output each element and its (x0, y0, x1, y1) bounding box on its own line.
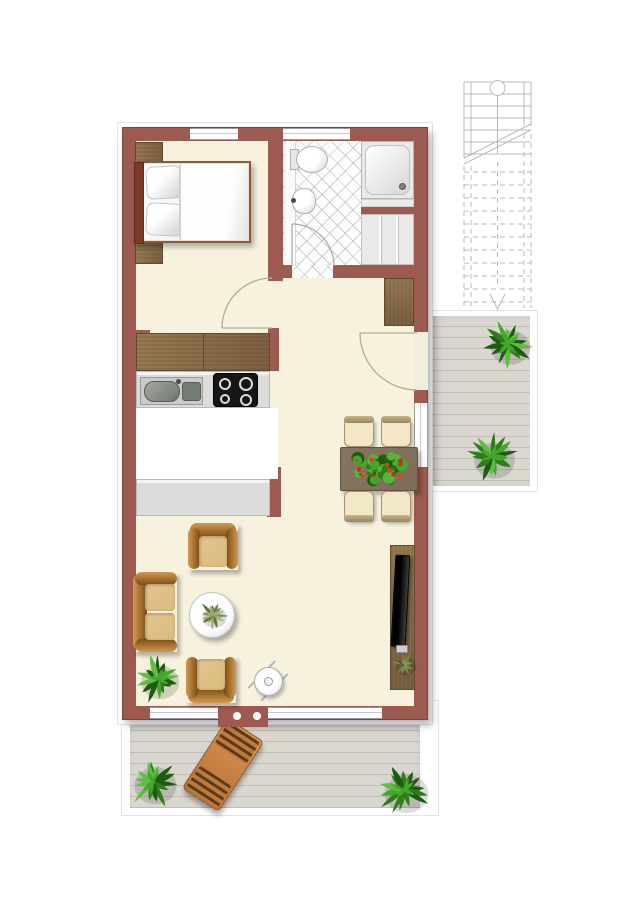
potted-plant (462, 427, 522, 487)
shower-ledge (361, 199, 414, 207)
bed-duvet (179, 164, 248, 240)
dining-chair (381, 491, 411, 521)
chair-back (344, 416, 374, 423)
closet-door-line (379, 216, 382, 263)
kitchen-sink-unit (140, 377, 203, 405)
potted-plant (479, 315, 537, 373)
sink-faucet (176, 379, 181, 384)
cooktop (213, 373, 258, 407)
closet-door-line (396, 216, 399, 263)
sink-drainer (182, 382, 201, 401)
armchair-arm-right (224, 657, 236, 698)
bed-headboard (134, 162, 144, 244)
sofa (133, 572, 177, 652)
stool-center (264, 677, 273, 686)
dining-chair (381, 417, 411, 447)
terrace-window-left (150, 707, 218, 719)
staircase (458, 76, 538, 320)
burner (219, 378, 231, 390)
bathroom-door-threshold (292, 265, 333, 278)
toilet (296, 146, 328, 173)
double-bed (133, 161, 251, 243)
burner (220, 394, 230, 404)
chair-back (381, 515, 411, 522)
potted-plant (122, 751, 184, 813)
entrance-doorway (414, 332, 428, 390)
armchair-seat (199, 536, 227, 567)
kitchen-tiled-floor (136, 408, 278, 479)
table-plant (195, 597, 231, 633)
wall-bedroom-bath (268, 141, 283, 281)
armchair-top (188, 523, 238, 570)
floor-plan (0, 0, 640, 908)
sink-basin (144, 381, 180, 402)
pillar-dot-right (253, 712, 261, 720)
wall-hall-bath (333, 265, 414, 278)
shower-head (399, 183, 406, 190)
dining-chair (344, 491, 374, 521)
kitchen-lower-counter (136, 479, 270, 516)
flower-planter (346, 450, 412, 488)
washbasin-faucet (291, 198, 296, 203)
wardrobe-divider (203, 334, 204, 370)
shower (361, 141, 414, 199)
chair-back (381, 416, 411, 423)
armchair-seat (197, 659, 225, 690)
bed-pillow (145, 165, 183, 200)
bathroom-top-window (283, 128, 350, 140)
wall-under-shower (352, 206, 414, 214)
utility-closet (361, 214, 414, 265)
potted-plant (372, 758, 436, 822)
hall-closet (384, 278, 414, 326)
wall-bath-door-left (283, 265, 292, 278)
burner (239, 377, 253, 391)
sofa-cushion (145, 613, 175, 640)
bed-pillow (145, 202, 183, 237)
lowboard-plant (390, 650, 420, 680)
armchair-arm-right (226, 528, 238, 569)
wardrobe-row (136, 333, 270, 371)
burner (240, 394, 252, 406)
armchair-bottom (186, 656, 236, 703)
chair-back (344, 515, 374, 522)
potted-plant (130, 651, 186, 707)
pillar-dot-left (233, 712, 241, 720)
bedroom-top-window (190, 128, 238, 140)
sofa-cushion (145, 584, 175, 611)
terrace-window-right (268, 707, 382, 719)
dining-chair (344, 417, 374, 447)
side-stool (254, 667, 283, 696)
